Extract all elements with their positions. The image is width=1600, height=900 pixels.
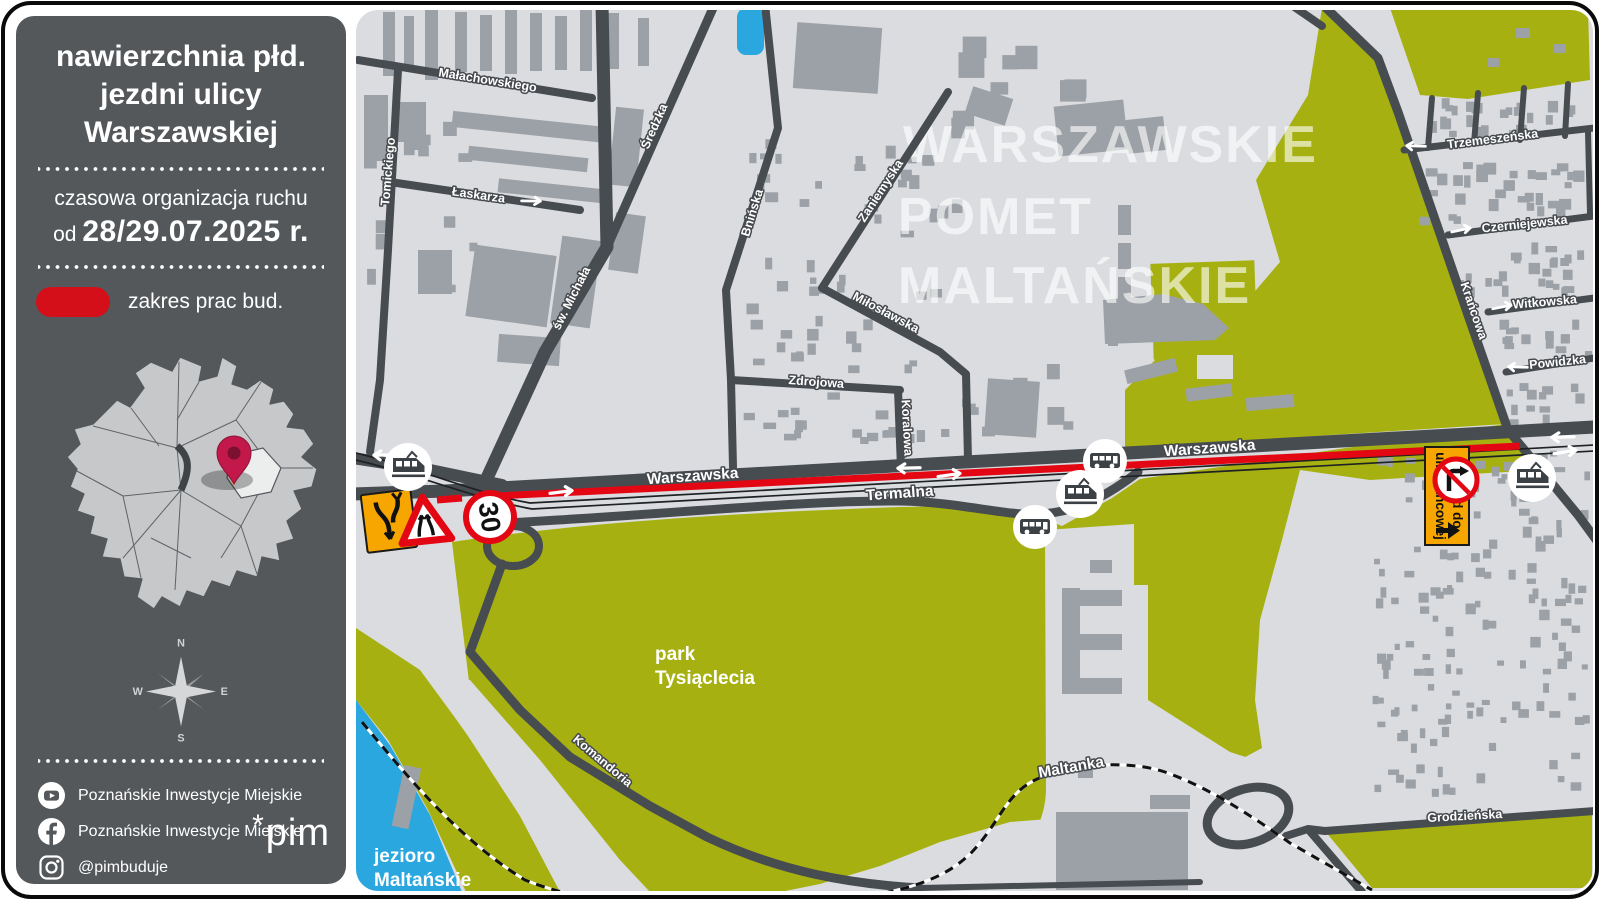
- bus-stop-icon: [1013, 505, 1057, 549]
- pond: [737, 8, 764, 55]
- youtube-label: Poznańskie Inwestycje Miejskie: [78, 787, 302, 805]
- watermark-pomet: POMET: [898, 188, 1093, 246]
- youtube-row: Poznańskie Inwestycje Miejskie: [38, 782, 324, 809]
- street-label-koralowa: Koralowa: [899, 399, 916, 457]
- watermark-maltanskie: MALTAŃSKIE: [898, 257, 1251, 315]
- compass-rose: N S W E: [116, 635, 246, 743]
- compass-w: W: [133, 686, 144, 698]
- no-right-turn-sign: [1435, 459, 1477, 501]
- info-sidebar: nawierzchnia płd. jezdni ulicy Warszawsk…: [16, 16, 346, 884]
- instagram-row: @pimbuduje: [38, 854, 324, 881]
- instagram-icon: [38, 854, 65, 881]
- youtube-icon: [38, 782, 65, 809]
- tram-stop-icon: [384, 443, 432, 491]
- legend-label: zakres prac bud.: [128, 290, 283, 314]
- subtitle: czasowa organizacja ruchu: [54, 187, 307, 211]
- page-title: nawierzchnia płd. jezdni ulicy Warszawsk…: [56, 38, 306, 151]
- pim-logo: *pim: [252, 809, 330, 855]
- park-label-line1: park: [655, 644, 696, 665]
- watermark-warszawskie: WARSZAWSKIE: [903, 116, 1318, 174]
- city-locator-map: [31, 323, 331, 633]
- speed-limit-30-sign: 30: [466, 493, 514, 541]
- lake-label-line2: Maltańskie: [374, 870, 471, 891]
- legend: zakres prac bud.: [36, 287, 326, 317]
- park-label-line2: Tysiąclecia: [655, 668, 755, 689]
- compass-s: S: [177, 733, 184, 744]
- svg-text:30: 30: [473, 500, 507, 534]
- lake-label-line1: jezioro: [373, 846, 435, 867]
- tram-stop-icon: [1508, 454, 1556, 502]
- instagram-label: @pimbuduje: [78, 859, 168, 877]
- dotted-divider: [38, 757, 324, 765]
- dotted-divider: [38, 165, 324, 173]
- compass-e: E: [221, 686, 228, 698]
- facebook-icon: [38, 818, 65, 845]
- dotted-divider: [38, 263, 324, 271]
- construction-zone-swatch: [36, 287, 110, 317]
- start-date: od 28/29.07.2025 r.: [53, 215, 309, 249]
- tram-stop-icon: [1056, 470, 1104, 518]
- compass-n: N: [177, 638, 185, 650]
